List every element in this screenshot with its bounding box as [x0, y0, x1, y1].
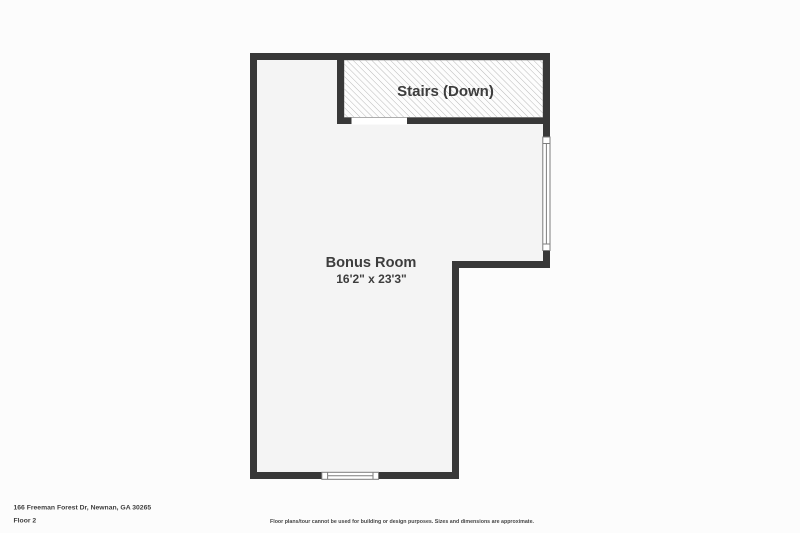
svg-text:Floor plans/tour cannot be use: Floor plans/tour cannot be used for buil…: [270, 519, 535, 525]
svg-text:Bonus Room: Bonus Room: [326, 255, 417, 271]
svg-text:166 Freeman Forest Dr, Newnan,: 166 Freeman Forest Dr, Newnan, GA 30265: [14, 504, 152, 511]
svg-text:16'2" x 23'3": 16'2" x 23'3": [336, 272, 406, 286]
svg-text:Stairs (Down): Stairs (Down): [397, 83, 494, 100]
svg-text:Floor 2: Floor 2: [14, 518, 37, 525]
